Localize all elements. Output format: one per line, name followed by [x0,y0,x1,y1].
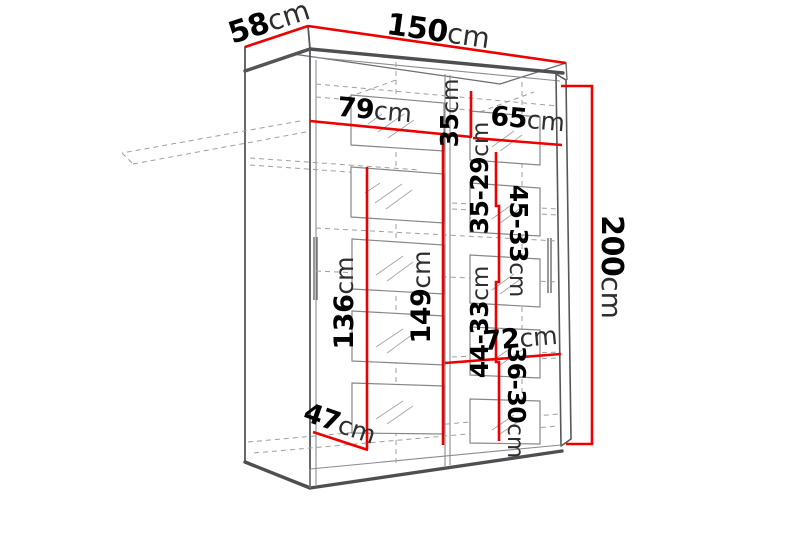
dim-label-right-section-width: 65cm [489,101,566,138]
dim-label-top-shelf-height: 35cm [435,79,464,148]
dim-label-interior-height: 149cm [406,251,437,344]
dim-label-right-shelf-3: 44-33cm [465,266,494,379]
top-panel-right-edge [566,63,567,80]
dim-label-left-interior-height: 136cm [329,257,360,350]
diagram-canvas: 58cm 150cm 200cm 79cm 35cm 65cm 35-29cm … [0,0,800,533]
dim-label-lower-shelf-width: 72cm [482,320,559,357]
dim-line-height-200 [561,86,592,444]
dim-label-left-section-width: 79cm [336,92,413,129]
dim-label-right-shelf-4: 36-30cm [502,346,531,459]
right-door-handle [548,238,551,293]
dim-label-height: 200cm [594,215,629,319]
dim-label-right-shelf-1: 35-29cm [465,122,494,235]
wardrobe-dimension-diagram: 58cm 150cm 200cm 79cm 35cm 65cm 35-29cm … [0,0,800,533]
dim-label-right-shelf-2: 45-33cm [504,185,533,298]
